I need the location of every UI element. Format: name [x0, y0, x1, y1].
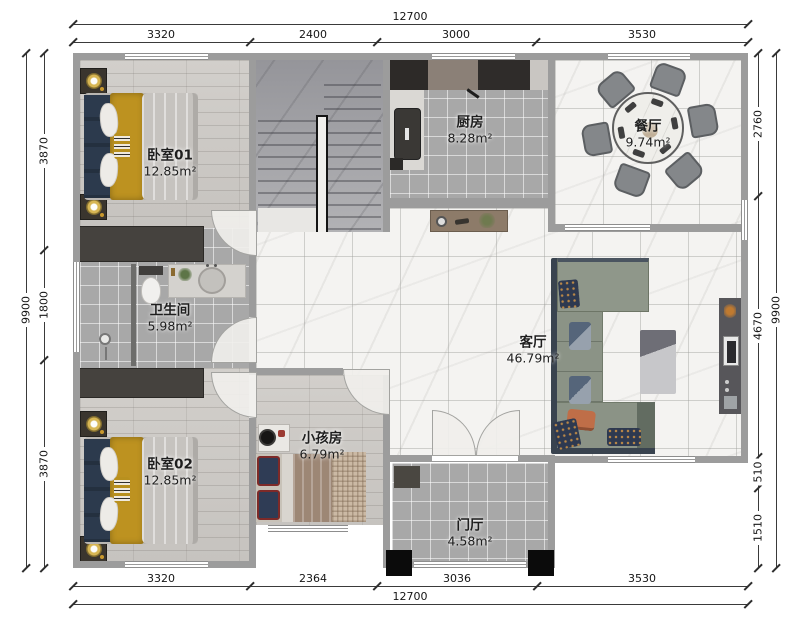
dim-label: 3530	[626, 28, 658, 41]
room-name: 卧室01	[144, 147, 197, 163]
dim-line	[73, 604, 748, 605]
window	[414, 561, 526, 568]
kitchen-counter	[428, 60, 478, 90]
window	[565, 224, 650, 231]
faucet-icon	[214, 264, 217, 267]
staircase	[256, 60, 383, 232]
dim-label: 3320	[145, 572, 177, 585]
dim-label: 3320	[145, 28, 177, 41]
wall	[249, 368, 343, 375]
placemat	[624, 101, 637, 113]
kitchen-counter	[390, 60, 428, 90]
dim-line	[73, 24, 748, 25]
column	[386, 550, 412, 576]
dim-label: 12700	[391, 590, 430, 603]
faucet-icon	[206, 264, 209, 267]
room-name: 卧室02	[144, 456, 197, 472]
plate-icon	[436, 216, 447, 227]
placemat	[632, 149, 645, 159]
room-area: 6.79m²	[299, 447, 344, 462]
room-area: 4.58m²	[447, 534, 492, 549]
decor-dot	[100, 555, 104, 559]
room-label-dining: 餐厅 9.74m²	[625, 118, 670, 149]
dim-label: 1800	[38, 288, 51, 322]
wall	[383, 455, 432, 462]
shower-partition	[131, 264, 136, 366]
kitchen-counter	[478, 60, 530, 90]
kids-rug	[332, 452, 366, 522]
window	[125, 561, 208, 568]
stair-flight-left	[258, 120, 316, 208]
plant-icon	[478, 213, 496, 228]
nightstand	[80, 68, 107, 94]
wall	[383, 198, 555, 208]
console-table	[430, 210, 508, 232]
dim-label: 2400	[297, 28, 329, 41]
room-area: 5.98m²	[147, 319, 192, 334]
sink	[198, 267, 226, 294]
throw-pillow	[558, 279, 580, 309]
wall	[249, 53, 256, 210]
room-label-kids: 小孩房 6.79m²	[299, 430, 344, 461]
nightstand	[80, 411, 107, 437]
dim-label: 3036	[441, 572, 473, 585]
desk-item	[278, 430, 285, 437]
kids-pillow	[257, 490, 280, 520]
toilet	[141, 277, 161, 304]
kids-bed	[255, 454, 335, 522]
window	[741, 200, 748, 240]
room-area: 12.85m²	[144, 473, 197, 488]
kids-sheet	[282, 454, 293, 522]
window	[125, 53, 208, 60]
decor-dot	[100, 87, 104, 91]
tv-screen	[727, 341, 736, 363]
sink-handle	[405, 128, 409, 140]
kids-pillow	[257, 456, 280, 486]
dim-label: 4670	[752, 309, 765, 343]
wardrobe-bedroom01	[78, 226, 204, 262]
room-name: 小孩房	[299, 430, 344, 446]
desk-chair	[259, 429, 276, 446]
dim-label: 12700	[391, 10, 430, 23]
sofa-base	[557, 448, 655, 454]
dim-label: 3870	[38, 447, 51, 481]
kitchen-counter	[530, 60, 548, 90]
toiletries-icon	[171, 268, 175, 276]
stair-railing	[316, 115, 328, 232]
dim-label: 2364	[297, 572, 329, 585]
room-area: 46.79m²	[507, 351, 560, 366]
room-area: 9.74m²	[625, 135, 670, 150]
window	[608, 456, 695, 463]
shower-head-icon	[99, 333, 111, 345]
wardrobe-bedroom02	[78, 368, 204, 398]
decor-dot	[100, 430, 104, 434]
dining-chair	[580, 121, 613, 157]
room-name: 餐厅	[625, 118, 670, 134]
door-sill	[432, 455, 518, 462]
dim-line	[73, 42, 748, 43]
room-label-bathroom: 卫生间 5.98m²	[147, 302, 192, 333]
decor-dot	[100, 213, 104, 217]
living-rug	[640, 330, 676, 394]
room-name: 门厅	[447, 517, 492, 533]
dim-label: 3000	[440, 28, 472, 41]
kids-blanket	[293, 454, 335, 522]
throw-pillow	[607, 428, 641, 446]
bed-bedroom02	[84, 437, 198, 544]
room-area: 12.85m²	[144, 164, 197, 179]
plant-icon	[178, 268, 192, 281]
room-name: 客厅	[507, 334, 560, 350]
shower-stem	[105, 347, 107, 360]
kitchen-appliance	[390, 158, 403, 170]
dim-label: 2760	[752, 107, 765, 141]
window	[73, 262, 80, 352]
plant-icon	[724, 303, 736, 319]
mattress-duvet	[142, 437, 198, 544]
dining-chair	[687, 102, 720, 138]
accent-pillow	[114, 133, 130, 159]
dim-label: 9900	[770, 293, 783, 327]
room-name: 卫生间	[147, 302, 192, 318]
tv-icon	[723, 336, 739, 366]
dining-chair	[663, 150, 706, 192]
knob-icon	[725, 380, 729, 384]
dim-label: 510	[752, 459, 765, 486]
throw-pillow	[569, 376, 591, 404]
throw-pillow	[569, 322, 591, 350]
window	[608, 53, 690, 60]
room-label-living: 客厅 46.79m²	[507, 334, 560, 365]
stair-flight-right	[324, 84, 381, 232]
column	[528, 550, 554, 576]
placemat	[671, 117, 679, 130]
stair-landing	[258, 208, 316, 232]
window	[432, 53, 515, 60]
room-label-kitchen: 厨房 8.28m²	[447, 114, 492, 145]
wall	[249, 255, 256, 317]
room-label-bedroom01: 卧室01 12.85m²	[144, 147, 197, 178]
decor-item	[455, 218, 470, 225]
room-label-bedroom02: 卧室02 12.85m²	[144, 456, 197, 487]
floor-plan: 卧室01 12.85m² 厨房 8.28m² 餐厅 9.74m² 卫生间 5.9…	[0, 0, 800, 643]
dim-line	[73, 586, 748, 587]
tv-cabinet	[719, 298, 743, 414]
placemat	[651, 98, 664, 108]
window	[268, 525, 348, 532]
wall	[518, 455, 555, 462]
dim-label: 1510	[752, 511, 765, 545]
knob-icon	[725, 388, 729, 392]
speaker	[724, 396, 737, 409]
room-area: 8.28m²	[447, 131, 492, 146]
room-name: 厨房	[447, 114, 492, 130]
wall	[249, 418, 256, 568]
toilet-tank	[139, 266, 163, 275]
shoe-cabinet	[394, 466, 420, 488]
dim-label: 9900	[20, 293, 33, 327]
room-label-entry: 门厅 4.58m²	[447, 517, 492, 548]
dim-label: 3530	[626, 572, 658, 585]
placemat	[617, 126, 625, 139]
dim-label: 3870	[38, 134, 51, 168]
wall	[741, 53, 748, 463]
accent-pillow	[114, 477, 130, 503]
